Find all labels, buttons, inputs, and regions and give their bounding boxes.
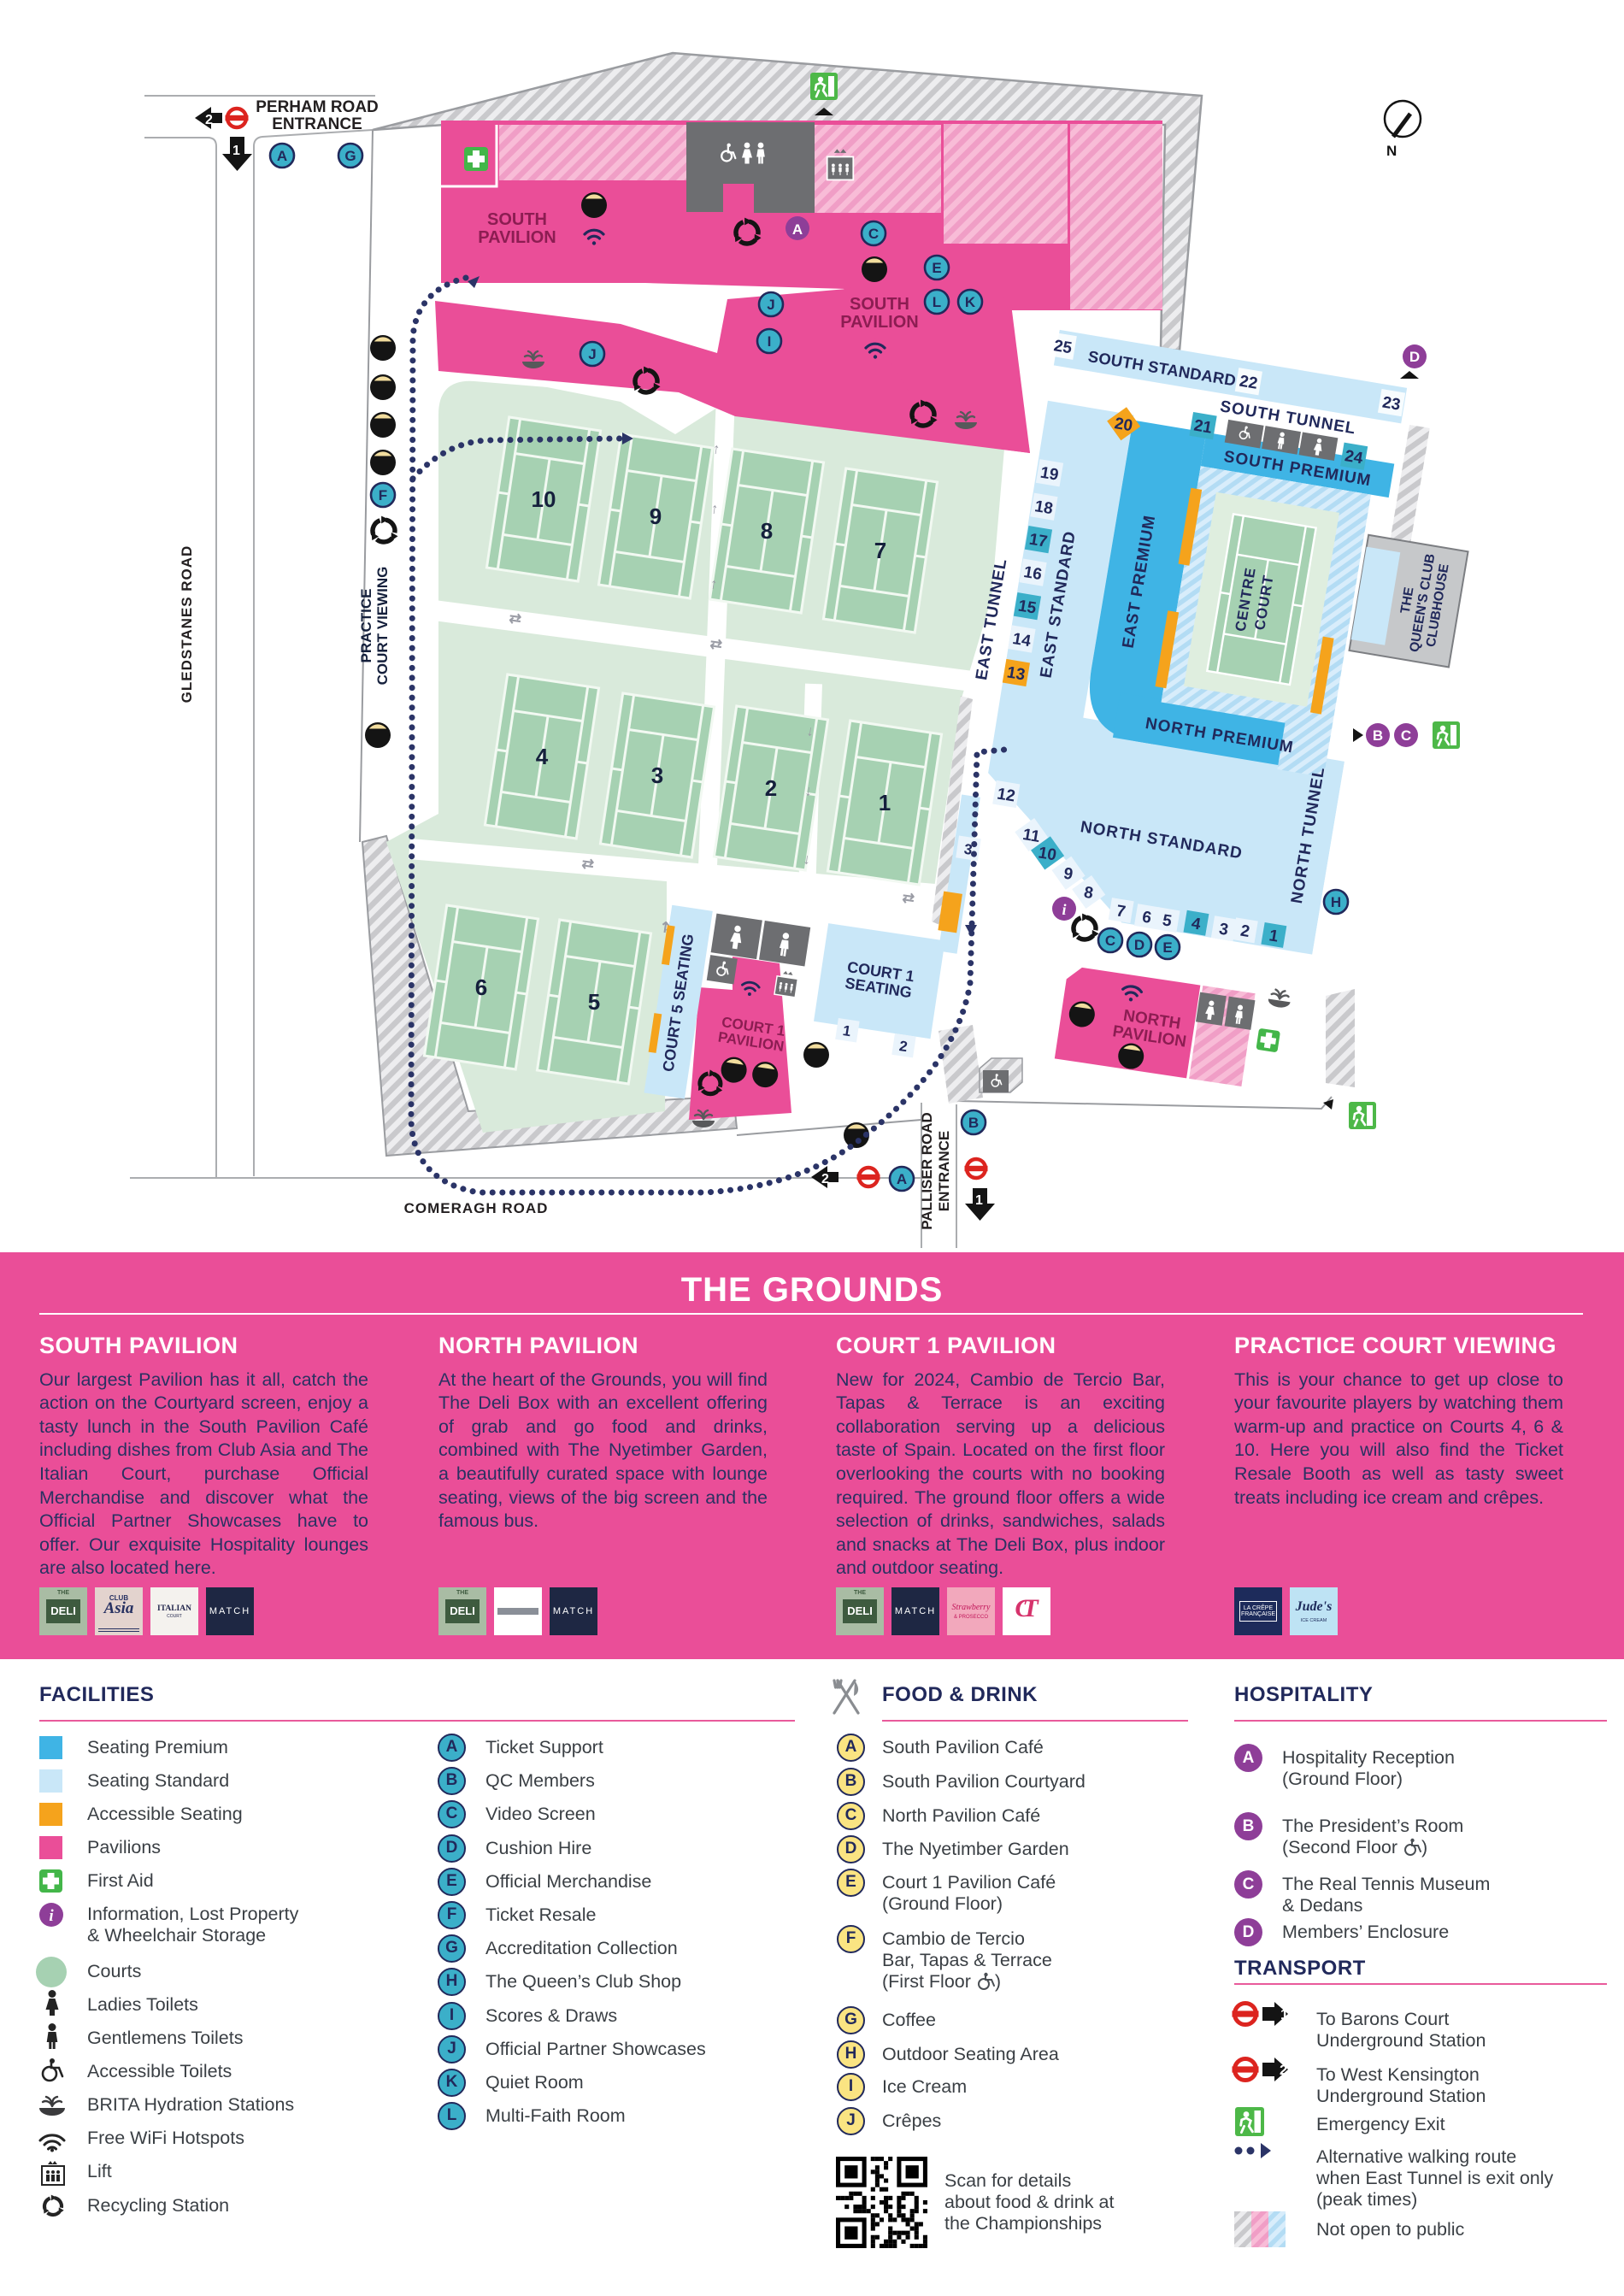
svg-text:21: 21: [1192, 417, 1214, 438]
svg-text:6: 6: [475, 974, 487, 1000]
svg-text:A: A: [277, 148, 287, 164]
svg-text:F: F: [379, 487, 387, 503]
svg-text:B: B: [1373, 727, 1383, 744]
svg-text:i: i: [49, 1907, 54, 1925]
svg-text:C: C: [1105, 933, 1115, 949]
svg-text:1: 1: [975, 1193, 983, 1208]
svg-text:H: H: [1331, 894, 1341, 910]
svg-text:ENTRANCE: ENTRANCE: [936, 1131, 952, 1211]
svg-text:15: 15: [1017, 597, 1039, 617]
svg-text:25: 25: [1052, 337, 1074, 357]
svg-text:14: 14: [1011, 630, 1033, 651]
svg-text:⇄: ⇄: [508, 609, 522, 627]
svg-text:10: 10: [1037, 844, 1057, 864]
svg-text:PAVILION: PAVILION: [478, 228, 556, 247]
svg-text:2: 2: [765, 775, 777, 801]
svg-text:COURT VIEWING: COURT VIEWING: [374, 567, 391, 686]
svg-text:12: 12: [996, 785, 1016, 805]
svg-text:COMERAGH ROAD: COMERAGH ROAD: [404, 1200, 549, 1216]
svg-text:ENTRANCE: ENTRANCE: [272, 115, 362, 133]
svg-text:9: 9: [650, 503, 662, 529]
svg-text:2: 2: [205, 113, 213, 127]
svg-text:L: L: [933, 294, 941, 310]
svg-text:⇄: ⇄: [580, 855, 595, 873]
svg-text:23: 23: [1381, 394, 1402, 415]
svg-text:J: J: [767, 297, 774, 313]
svg-text:4: 4: [536, 744, 549, 769]
svg-text:E: E: [1162, 939, 1172, 956]
svg-text:GLEDSTANES ROAD: GLEDSTANES ROAD: [179, 545, 195, 704]
svg-text:20: 20: [1113, 415, 1133, 435]
svg-text:N: N: [1386, 143, 1397, 159]
svg-text:D: D: [1134, 937, 1144, 953]
svg-text:3: 3: [651, 762, 663, 788]
svg-text:10: 10: [532, 486, 556, 512]
svg-text:5: 5: [588, 989, 600, 1015]
svg-text:A: A: [792, 221, 803, 238]
svg-text:2: 2: [1280, 2062, 1287, 2078]
svg-text:i: i: [1062, 901, 1066, 918]
svg-text:SOUTH: SOUTH: [487, 210, 547, 229]
svg-text:24: 24: [1344, 447, 1365, 468]
svg-text:11: 11: [1021, 826, 1042, 846]
svg-text:8: 8: [761, 518, 773, 544]
svg-text:22: 22: [1238, 373, 1258, 393]
svg-text:⇄: ⇄: [709, 635, 723, 653]
svg-text:K: K: [965, 294, 976, 310]
svg-text:18: 18: [1033, 497, 1054, 518]
svg-text:A: A: [897, 1171, 907, 1187]
svg-text:G: G: [344, 148, 356, 164]
svg-text:⇄: ⇄: [901, 889, 915, 907]
svg-text:D: D: [1409, 349, 1420, 365]
svg-text:17: 17: [1028, 531, 1049, 551]
svg-text:C: C: [868, 226, 879, 242]
svg-text:PRACTICE: PRACTICE: [358, 589, 374, 663]
svg-text:PERHAM ROAD: PERHAM ROAD: [256, 98, 379, 116]
svg-text:PALLISER ROAD: PALLISER ROAD: [919, 1112, 935, 1230]
svg-text:1: 1: [1280, 2006, 1288, 2022]
svg-text:PAVILION: PAVILION: [840, 313, 918, 332]
svg-text:1: 1: [232, 144, 240, 158]
svg-text:C: C: [1401, 727, 1411, 744]
svg-text:B: B: [968, 1115, 979, 1131]
svg-text:J: J: [588, 346, 596, 362]
svg-text:SOUTH: SOUTH: [850, 295, 909, 314]
svg-text:I: I: [768, 333, 772, 350]
svg-text:16: 16: [1022, 563, 1043, 584]
svg-text:E: E: [932, 260, 941, 276]
svg-text:1: 1: [879, 790, 891, 815]
svg-text:13: 13: [1005, 663, 1026, 684]
svg-text:19: 19: [1039, 464, 1060, 485]
svg-text:2: 2: [821, 1172, 829, 1186]
svg-text:7: 7: [874, 538, 886, 563]
